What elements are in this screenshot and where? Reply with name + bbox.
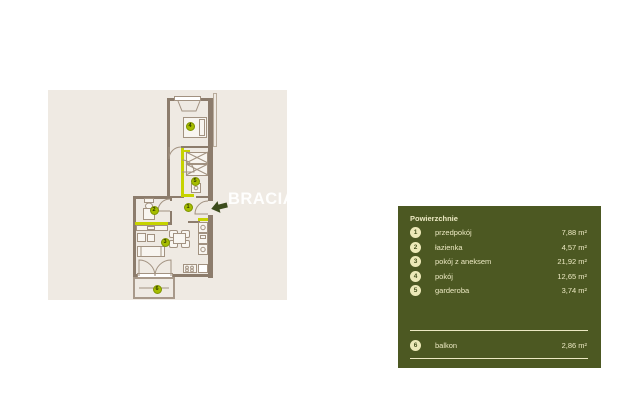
legend-divider xyxy=(410,330,588,331)
room-area: 3,74 m² xyxy=(562,286,587,295)
room-number-badge: 3 xyxy=(410,256,421,267)
room-number-badge: 1 xyxy=(410,227,421,238)
room-label: pokój z aneksem xyxy=(435,257,491,266)
plan-marker-2: 2 xyxy=(150,206,159,215)
plan-marker-4: 4 xyxy=(186,122,195,131)
legend-panel: Powierzchnie 1 przedpokój 7,88 m² 2 łazi… xyxy=(398,206,601,368)
page: 1 2 3 4 5 6 BRACIA Powierzchnie 1 przedp… xyxy=(0,0,620,400)
watermark: BRACIA xyxy=(228,190,287,209)
legend-row-balkon: 6 balkon 2,86 m² xyxy=(410,340,587,351)
plan-marker-6: 6 xyxy=(153,285,162,294)
room-label: balkon xyxy=(435,341,457,350)
legend-row-lazienka: 2 łazienka 4,57 m² xyxy=(410,242,587,253)
room-label: przedpokój xyxy=(435,228,472,237)
plan-furniture xyxy=(134,94,217,299)
room-number-badge: 5 xyxy=(410,285,421,296)
room-number-badge: 2 xyxy=(410,242,421,253)
room-area: 7,88 m² xyxy=(562,228,587,237)
room-label: łazienka xyxy=(435,243,463,252)
legend-divider xyxy=(410,358,588,359)
room-number-badge: 4 xyxy=(410,271,421,282)
plan-marker-1: 1 xyxy=(184,203,193,212)
legend-title: Powierzchnie xyxy=(410,214,458,223)
room-area: 21,92 m² xyxy=(557,257,587,266)
room-area: 12,65 m² xyxy=(557,272,587,281)
floor-plan: 1 2 3 4 5 6 BRACIA xyxy=(48,90,287,300)
room-label: garderoba xyxy=(435,286,469,295)
room-area: 4,57 m² xyxy=(562,243,587,252)
room-number-badge: 6 xyxy=(410,340,421,351)
legend-row-pokoj-z-aneksem: 3 pokój z aneksem 21,92 m² xyxy=(410,256,587,267)
room-area: 2,86 m² xyxy=(562,341,587,350)
plan-marker-3: 3 xyxy=(161,238,170,247)
plan-marker-5: 5 xyxy=(191,177,200,186)
legend-row-garderoba: 5 garderoba 3,74 m² xyxy=(410,285,587,296)
legend-row-pokoj: 4 pokój 12,65 m² xyxy=(410,271,587,282)
legend-row-przedpokoj: 1 przedpokój 7,88 m² xyxy=(410,227,587,238)
room-label: pokój xyxy=(435,272,453,281)
